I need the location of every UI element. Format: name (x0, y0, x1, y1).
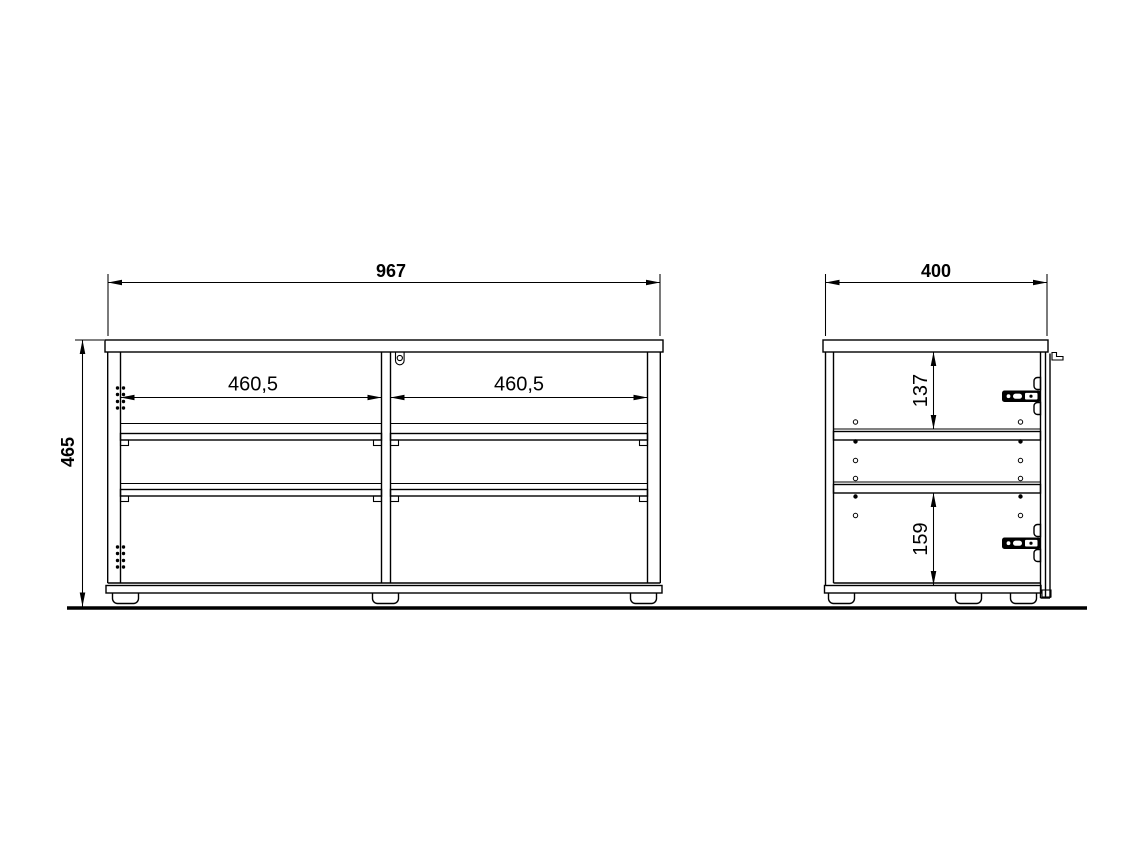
side-feet (829, 593, 1037, 604)
shelf-edge (834, 485, 1041, 494)
foot (829, 593, 855, 604)
foot (113, 593, 139, 604)
front-bottom-panel (106, 586, 662, 594)
dim-side-depth-label: 400 (921, 261, 951, 281)
shelf-pin-holes (853, 420, 1022, 518)
foot (1011, 593, 1037, 604)
arrowhead-icon (634, 395, 648, 401)
front-top-panel (105, 340, 663, 352)
dim-side-depth: 400 (826, 261, 1048, 336)
dim-lower-section: 159 (910, 493, 936, 585)
dim-upper-section: 137 (910, 352, 936, 429)
door-hinge-bottom-icon (1002, 525, 1041, 562)
foot (373, 593, 399, 604)
side-view: 400 137 159 (823, 261, 1063, 604)
front-shelves-left (121, 424, 382, 502)
dim-front-height-label: 465 (58, 437, 78, 467)
door-hinge-top-icon (1002, 378, 1041, 415)
technical-drawing: 967 465 460,5 460,5 (0, 0, 1148, 861)
side-shelves (834, 429, 1041, 493)
arrowhead-icon (368, 395, 382, 401)
shelf-support (391, 440, 399, 446)
side-bottom-panel (825, 586, 1042, 594)
dim-front-width-label: 967 (376, 261, 406, 281)
arrowhead-icon (108, 280, 122, 286)
shelf-support (121, 496, 129, 502)
shelf-support (640, 496, 648, 502)
drawing-canvas: 967 465 460,5 460,5 (0, 0, 1148, 861)
shelf-support (374, 496, 382, 502)
arrowhead-icon (80, 593, 86, 607)
side-top-panel (823, 340, 1048, 352)
side-door (1041, 352, 1064, 598)
shelf-front-edge (391, 490, 648, 497)
dim-left-opening: 460,5 (121, 374, 382, 401)
shelf-support (374, 440, 382, 446)
dim-front-width: 967 (108, 261, 660, 336)
dim-lower-section-label: 159 (910, 522, 932, 555)
shelf-front-edge (121, 434, 382, 441)
shelf-support (121, 440, 129, 446)
cam-lock-icon (396, 352, 405, 365)
arrowhead-icon (1033, 280, 1047, 286)
shelf-front-edge (121, 490, 382, 497)
door-top-bracket-icon (1052, 353, 1063, 361)
foot (631, 593, 657, 604)
arrowhead-icon (931, 415, 937, 429)
shelf-support (640, 440, 648, 446)
front-shelves-right (391, 424, 648, 502)
arrowhead-icon (646, 280, 660, 286)
shelf-support (391, 496, 399, 502)
arrowhead-icon (931, 352, 937, 366)
dim-left-opening-label: 460,5 (228, 374, 278, 396)
foot (956, 593, 982, 604)
dim-front-height: 465 (58, 340, 104, 607)
arrowhead-icon (826, 280, 840, 286)
dim-right-opening-label: 460,5 (494, 374, 544, 396)
shelf-front-edge (391, 434, 648, 441)
dim-right-opening: 460,5 (391, 374, 648, 401)
dim-upper-section-label: 137 (910, 374, 932, 407)
front-feet (113, 593, 657, 604)
front-view: 967 465 460,5 460,5 (58, 261, 663, 607)
arrowhead-icon (931, 493, 937, 507)
arrowhead-icon (80, 340, 86, 354)
arrowhead-icon (391, 395, 405, 401)
shelf-edge (834, 432, 1041, 441)
